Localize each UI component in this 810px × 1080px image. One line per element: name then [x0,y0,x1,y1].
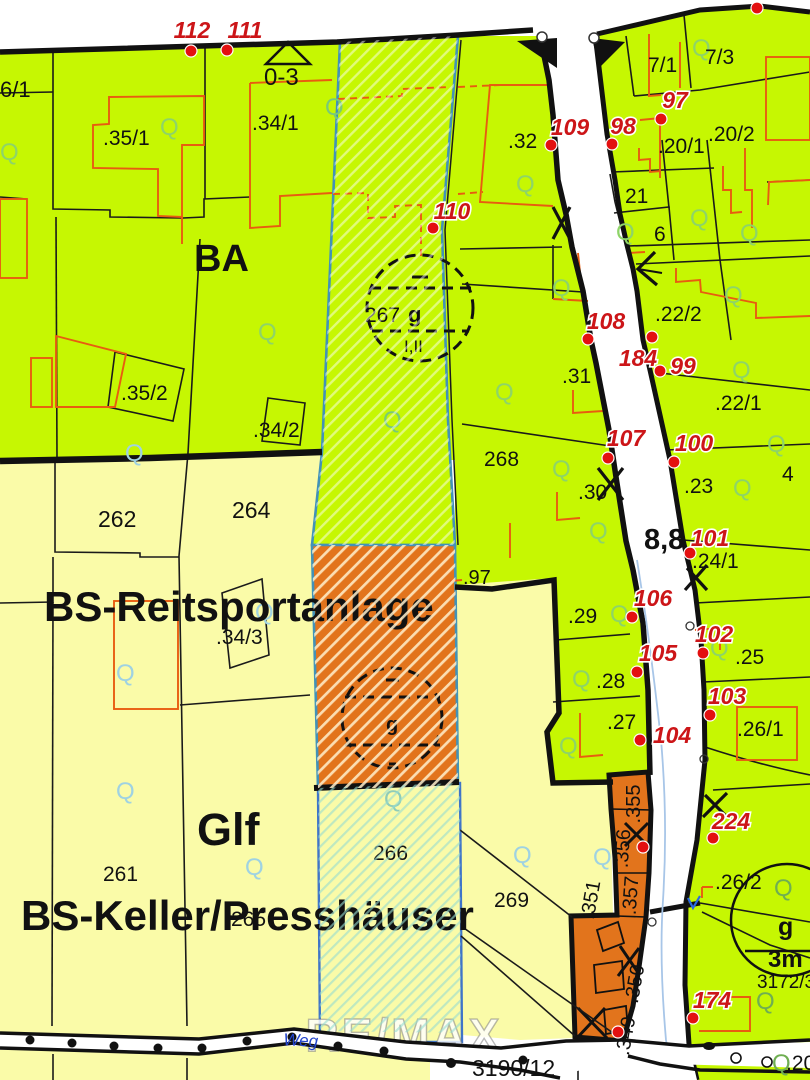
svg-text:Q: Q [245,854,264,881]
svg-text:224: 224 [711,808,751,834]
svg-text:g: g [778,913,793,941]
svg-text:6: 6 [654,223,666,246]
svg-text:Q: Q [495,379,514,406]
svg-text:Q: Q [732,357,751,384]
svg-text:.30: .30 [578,481,607,504]
svg-text:.35/1: .35/1 [103,127,150,150]
svg-text:174: 174 [693,987,732,1013]
svg-text:264: 264 [232,497,271,523]
svg-text:6/1: 6/1 [0,77,31,102]
svg-text:.35/2: .35/2 [121,382,168,405]
svg-text:3172/3: 3172/3 [757,972,810,993]
svg-text:269: 269 [494,889,529,912]
svg-text:Weg: Weg [283,1030,319,1051]
svg-text:.34/2: .34/2 [253,419,300,442]
svg-text:Q: Q [589,518,608,545]
svg-text:99: 99 [670,353,696,379]
svg-text:Q: Q [160,114,179,141]
svg-text:Q: Q [552,275,571,302]
svg-text:Q: Q [116,778,135,805]
svg-text:Q: Q [740,220,759,247]
svg-text:Q: Q [559,733,578,760]
svg-text:184: 184 [619,345,658,371]
svg-text:105: 105 [639,640,679,666]
svg-text:112: 112 [174,17,211,43]
svg-text:Q: Q [767,431,786,458]
svg-text:111: 111 [228,17,263,43]
svg-text:262: 262 [98,506,136,532]
svg-text:8,8: 8,8 [644,524,684,556]
svg-text:110: 110 [434,198,471,224]
svg-text:100: 100 [675,430,714,456]
svg-text:3m: 3m [768,946,803,973]
svg-text:.20/2: .20/2 [708,123,755,146]
svg-text:261: 261 [103,863,138,886]
svg-text:107: 107 [607,425,647,451]
svg-text:.22/2: .22/2 [655,303,702,326]
svg-text:7/3: 7/3 [705,46,734,69]
svg-text:.28: .28 [596,670,625,693]
svg-text:.34/1: .34/1 [252,112,299,135]
svg-text:.355: .355 [623,785,645,824]
svg-text:7/1: 7/1 [648,54,677,77]
svg-text:.356: .356 [611,828,636,868]
svg-text:.31: .31 [562,365,591,388]
svg-text:108: 108 [587,308,626,334]
svg-text:Q: Q [572,666,591,693]
svg-text:103: 103 [708,683,747,709]
svg-text:0-3: 0-3 [264,64,299,91]
svg-text:Q: Q [690,205,709,232]
svg-text:.20: .20 [786,1052,810,1075]
svg-text:.25: .25 [735,646,764,669]
svg-text:Q: Q [733,475,752,502]
svg-text:97: 97 [662,87,689,113]
svg-text:21: 21 [625,185,648,208]
svg-text:.23: .23 [684,475,713,498]
svg-text:109: 109 [551,114,590,140]
svg-text:.32: .32 [508,130,537,153]
svg-text:4: 4 [782,463,794,486]
svg-text:Q: Q [513,842,532,869]
svg-text:.29: .29 [568,605,597,628]
svg-text:.357: .357 [619,875,644,915]
svg-text:Glf: Glf [197,804,261,855]
svg-text:Q: Q [610,601,629,628]
svg-text:Q: Q [125,440,144,467]
svg-text:BA: BA [194,238,249,280]
svg-text:.26/2: .26/2 [715,871,762,894]
svg-text:Q: Q [593,844,612,871]
svg-text:Q: Q [552,456,571,483]
svg-text:3190/12: 3190/12 [472,1055,555,1080]
svg-text:268: 268 [484,448,519,471]
svg-text:.27: .27 [607,711,636,734]
svg-text:104: 104 [653,722,692,748]
svg-text:106: 106 [634,585,673,611]
svg-text:Q: Q [724,282,743,309]
svg-text:.22/1: .22/1 [715,392,762,415]
svg-text:Q: Q [774,875,793,902]
svg-text:.26/1: .26/1 [737,718,784,741]
svg-text:Q: Q [258,319,277,346]
svg-text:102: 102 [695,621,734,647]
svg-text:.24/1: .24/1 [692,550,739,573]
svg-text:Q: Q [616,219,635,246]
svg-text:98: 98 [610,113,636,139]
svg-text:.20/1: .20/1 [658,135,705,158]
svg-text:Q: Q [516,171,535,198]
svg-text:.97: .97 [463,567,491,589]
svg-text:Q: Q [116,660,135,687]
svg-text:Q: Q [0,139,19,166]
svg-text:101: 101 [691,525,729,551]
